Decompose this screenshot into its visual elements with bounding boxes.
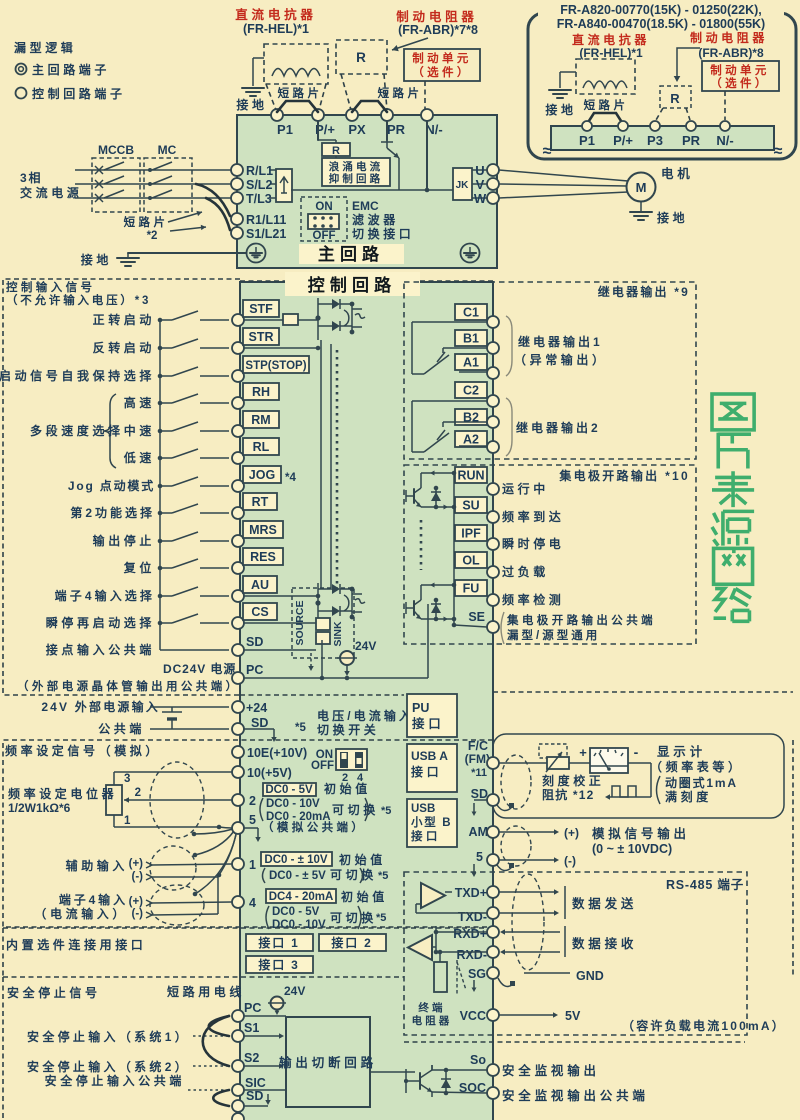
svg-text:接点输入公共端: 接点输入公共端 <box>46 642 155 657</box>
svg-text:可切换: 可切换 <box>330 867 377 882</box>
svg-text:SINK: SINK <box>332 621 344 647</box>
svg-text:数据接收: 数据接收 <box>571 936 637 951</box>
svg-text:RUN: RUN <box>457 469 484 483</box>
svg-text:频率设定信号（模拟）: 频率设定信号（模拟） <box>5 743 161 758</box>
svg-text:GND: GND <box>576 969 604 983</box>
svg-text:（选件）: （选件） <box>412 65 472 79</box>
svg-text:*5: *5 <box>376 912 386 924</box>
svg-text:SIC: SIC <box>245 1076 266 1090</box>
svg-text:RES: RES <box>250 550 276 564</box>
svg-text:切换开关: 切换开关 <box>317 722 379 737</box>
svg-text:继电器输出2: 继电器输出2 <box>516 420 601 435</box>
svg-text:1: 1 <box>124 815 131 827</box>
svg-text:RL: RL <box>253 440 270 454</box>
svg-text:显示计: 显示计 <box>657 744 706 759</box>
svg-text:接地: 接地 <box>545 102 576 117</box>
svg-text:A1: A1 <box>463 356 479 370</box>
svg-text:SG: SG <box>468 967 486 981</box>
svg-text:(+): (+) <box>129 896 144 908</box>
svg-text:漏型逻辑: 漏型逻辑 <box>14 40 76 55</box>
svg-text:制动单元: 制动单元 <box>412 51 472 65</box>
svg-text:STF: STF <box>249 302 273 316</box>
svg-text:低速: 低速 <box>123 450 155 465</box>
svg-text:*4: *4 <box>285 472 296 484</box>
svg-text:短路片: 短路片 <box>378 86 423 100</box>
svg-text:U: U <box>475 163 484 178</box>
svg-text:终端: 终端 <box>418 1001 445 1014</box>
svg-text:SU: SU <box>462 499 479 513</box>
svg-text:DC0 - 5V: DC0 - 5V <box>265 784 313 796</box>
svg-text:输出切断回路: 输出切断回路 <box>279 1055 377 1070</box>
svg-text:接口 1: 接口 1 <box>258 935 299 950</box>
svg-text:5V: 5V <box>565 1009 581 1023</box>
svg-text:（外部电源晶体管输出用公共端）: （外部电源晶体管输出用公共端） <box>17 679 241 693</box>
svg-text:第2功能选择: 第2功能选择 <box>70 505 155 520</box>
svg-text:集电极开路输出 *10: 集电极开路输出 *10 <box>558 468 690 483</box>
svg-text:输出停止: 输出停止 <box>93 533 155 548</box>
svg-text:(FR-HEL)*1: (FR-HEL)*1 <box>579 46 643 60</box>
svg-text:控制回路: 控制回路 <box>308 275 396 295</box>
svg-text:3相: 3相 <box>20 170 42 185</box>
svg-text:(-): (-) <box>564 854 576 868</box>
svg-text:滤波器: 滤波器 <box>352 212 399 227</box>
svg-text:RS-485 端子: RS-485 端子 <box>666 877 744 892</box>
svg-text:*5: *5 <box>295 722 306 734</box>
svg-text:安全监视输出: 安全监视输出 <box>502 1063 600 1078</box>
svg-text:W: W <box>474 191 487 206</box>
svg-text:端子4输入: 端子4输入 <box>59 892 128 907</box>
svg-text:RXD+: RXD+ <box>453 927 487 941</box>
svg-text:控制回路端子: 控制回路端子 <box>32 86 126 101</box>
svg-text:P3: P3 <box>647 133 663 148</box>
svg-text:(FR-HEL)*1: (FR-HEL)*1 <box>243 22 309 36</box>
svg-text:启动信号自我保持选择: 启动信号自我保持选择 <box>0 368 155 383</box>
svg-text:（选件）: （选件） <box>710 76 770 90</box>
svg-text:P1: P1 <box>579 133 595 148</box>
svg-text:SE: SE <box>468 610 485 624</box>
svg-text:OFF: OFF <box>311 760 334 772</box>
svg-text:(FR-ABR)*8: (FR-ABR)*8 <box>698 46 764 60</box>
svg-text:1/2W1kΩ*6: 1/2W1kΩ*6 <box>8 801 71 815</box>
svg-text:PC: PC <box>246 663 263 677</box>
svg-text:4: 4 <box>249 896 256 910</box>
svg-text:ON: ON <box>315 201 332 213</box>
svg-text:MCCB: MCCB <box>98 143 134 157</box>
svg-text:≈: ≈ <box>543 143 552 160</box>
svg-text:直流电抗器: 直流电抗器 <box>235 7 317 22</box>
svg-text:DC24V 电源: DC24V 电源 <box>163 661 236 676</box>
svg-text:P1: P1 <box>277 122 293 137</box>
svg-text:SD: SD <box>246 635 263 649</box>
svg-text:N/-: N/- <box>716 133 733 148</box>
svg-text:TXD+: TXD+ <box>455 886 487 900</box>
svg-text:*11: *11 <box>471 767 487 779</box>
svg-text:24V: 24V <box>355 639 376 653</box>
svg-text:端子4输入选择: 端子4输入选择 <box>55 588 155 603</box>
svg-text:S1: S1 <box>244 1021 259 1035</box>
svg-text:安全监视输出公共端: 安全监视输出公共端 <box>502 1088 649 1103</box>
svg-text:短路用电线: 短路用电线 <box>167 984 245 999</box>
svg-text:安全停止输入（系统1）: 安全停止输入（系统1） <box>27 1029 190 1044</box>
svg-text:继电器输出1: 继电器输出1 <box>518 334 603 349</box>
svg-text:浪涌电流: 浪涌电流 <box>329 160 383 173</box>
svg-text:F/C: F/C <box>468 739 488 753</box>
svg-text:PR: PR <box>387 122 406 137</box>
svg-text:PR: PR <box>682 133 701 148</box>
svg-text:正转启动: 正转启动 <box>93 312 155 327</box>
svg-text:多段速度选择: 多段速度选择 <box>30 423 124 438</box>
svg-text:接口 3: 接口 3 <box>258 957 299 972</box>
svg-text:频率到达: 频率到达 <box>502 509 564 524</box>
svg-text:MC: MC <box>158 143 177 157</box>
svg-text:(FR-ABR)*7*8: (FR-ABR)*7*8 <box>398 23 478 37</box>
svg-text:初始值: 初始值 <box>339 852 386 867</box>
svg-text:电阻器: 电阻器 <box>412 1014 453 1027</box>
svg-text:IPF: IPF <box>461 527 481 541</box>
svg-text:RXD-: RXD- <box>456 948 487 962</box>
svg-text:R/L1: R/L1 <box>246 164 273 178</box>
svg-text:过负载: 过负载 <box>502 564 549 579</box>
svg-text:安全停止输入（系统2）: 安全停止输入（系统2） <box>27 1059 190 1074</box>
svg-text:辅助输入: 辅助输入 <box>66 858 128 873</box>
svg-text:PX: PX <box>348 122 366 137</box>
svg-text:(+): (+) <box>129 858 144 870</box>
svg-text:R: R <box>332 145 340 157</box>
svg-text:R: R <box>356 50 366 65</box>
svg-text:C1: C1 <box>463 306 479 320</box>
svg-text:公共端: 公共端 <box>98 721 145 736</box>
svg-text:C2: C2 <box>463 384 479 398</box>
svg-text:USB A: USB A <box>411 749 448 763</box>
svg-text:接口: 接口 <box>412 716 445 731</box>
svg-text:SD: SD <box>471 787 488 801</box>
svg-text:（频率表等）: （频率表等） <box>650 759 744 774</box>
svg-text:Jog 点动模式: Jog 点动模式 <box>68 478 155 493</box>
svg-text:EMC: EMC <box>352 199 379 213</box>
svg-text:电机: 电机 <box>661 166 694 181</box>
svg-text:接口 2: 接口 2 <box>331 935 372 950</box>
svg-text:（容许负载电流100mA）: （容许负载电流100mA） <box>622 1018 786 1033</box>
svg-text:直流电抗器: 直流电抗器 <box>572 32 650 47</box>
svg-text:FU: FU <box>463 582 480 596</box>
svg-text:模拟信号输出: 模拟信号输出 <box>592 826 690 841</box>
svg-text:接口: 接口 <box>411 829 441 843</box>
svg-text:接地: 接地 <box>657 210 688 225</box>
svg-text:RH: RH <box>252 385 270 399</box>
svg-text:*5: *5 <box>381 805 391 817</box>
svg-text:STP(STOP): STP(STOP) <box>245 360 306 372</box>
svg-text:USB: USB <box>411 803 435 815</box>
svg-text:S1/L21: S1/L21 <box>246 227 286 241</box>
svg-text:M: M <box>636 180 647 195</box>
svg-text:DC0 - 20mA: DC0 - 20mA <box>266 811 331 823</box>
svg-text:短路片: 短路片 <box>124 215 169 229</box>
svg-text:B1: B1 <box>463 332 479 346</box>
svg-text:5: 5 <box>476 850 483 864</box>
svg-text:AM: AM <box>469 825 488 839</box>
svg-text:小型 B: 小型 B <box>410 815 452 829</box>
svg-text:SD: SD <box>246 1089 263 1103</box>
svg-text:24V: 24V <box>284 984 305 998</box>
svg-text:PU: PU <box>412 701 429 715</box>
svg-text:1: 1 <box>249 858 256 872</box>
svg-text:交流电源: 交流电源 <box>20 185 82 200</box>
svg-text:JOG: JOG <box>249 468 275 482</box>
svg-text:瞬时停电: 瞬时停电 <box>502 536 564 551</box>
svg-text:接口: 接口 <box>411 764 442 779</box>
svg-text:So: So <box>470 1053 486 1067</box>
svg-text:继电器输出 *9: 继电器输出 *9 <box>598 284 690 299</box>
svg-text:DC4 - 20mA: DC4 - 20mA <box>269 891 334 903</box>
svg-text:阻抗 *12: 阻抗 *12 <box>542 787 595 802</box>
svg-text:频率检测: 频率检测 <box>502 592 564 607</box>
svg-text:FR-A820-00770(15K) - 01250(22K: FR-A820-00770(15K) - 01250(22K), <box>560 3 761 17</box>
svg-text:切换接口: 切换接口 <box>352 226 414 241</box>
svg-text:DC0 - 5V: DC0 - 5V <box>272 906 320 918</box>
svg-text:反转启动: 反转启动 <box>93 340 155 355</box>
svg-text:(0 ~ ± 10VDC): (0 ~ ± 10VDC) <box>592 842 672 856</box>
svg-text:-: - <box>634 744 639 760</box>
svg-text:DC0 - ± 5V: DC0 - ± 5V <box>269 870 326 882</box>
svg-text:5: 5 <box>249 813 256 827</box>
svg-text:2: 2 <box>249 794 256 808</box>
svg-text:*2: *2 <box>147 230 158 242</box>
svg-text:SOURCE: SOURCE <box>294 601 306 646</box>
svg-text:R1/L11: R1/L11 <box>246 213 286 227</box>
svg-text:FR-A840-00470(18.5K) - 01800(5: FR-A840-00470(18.5K) - 01800(55K) <box>557 17 765 31</box>
svg-text:A2: A2 <box>463 433 479 447</box>
svg-text:满刻度: 满刻度 <box>665 789 712 804</box>
svg-text:3: 3 <box>124 773 130 785</box>
svg-text:复位: 复位 <box>123 560 155 575</box>
svg-text:可切换: 可切换 <box>332 802 379 817</box>
svg-text:初始值: 初始值 <box>324 781 371 796</box>
svg-text:主回路端子: 主回路端子 <box>32 62 110 77</box>
svg-text:瞬停再启动选择: 瞬停再启动选择 <box>46 615 155 630</box>
svg-text:VCC: VCC <box>460 1009 486 1023</box>
svg-text:+24: +24 <box>246 701 267 715</box>
svg-text:JK: JK <box>456 180 470 191</box>
svg-text:运行中: 运行中 <box>502 481 549 496</box>
svg-text:数据发送: 数据发送 <box>571 896 637 911</box>
svg-text:PC: PC <box>244 1001 261 1015</box>
svg-text:初始值: 初始值 <box>341 889 388 904</box>
svg-text:2: 2 <box>135 787 141 799</box>
svg-text:OFF: OFF <box>313 230 336 242</box>
svg-text:可切换: 可切换 <box>330 910 377 925</box>
svg-text:R: R <box>670 91 680 106</box>
svg-text:安全停止输入公共端: 安全停止输入公共端 <box>45 1073 185 1088</box>
svg-text:接地: 接地 <box>81 252 112 267</box>
svg-text:RT: RT <box>252 495 269 509</box>
svg-text:制动电阻器: 制动电阻器 <box>396 9 478 24</box>
svg-text:TXD-: TXD- <box>458 910 487 924</box>
svg-text:动圈式1mA: 动圈式1mA <box>665 775 738 790</box>
svg-text:安全停止信号: 安全停止信号 <box>7 985 101 1000</box>
svg-text:CS: CS <box>251 605 268 619</box>
svg-text:S/L2: S/L2 <box>246 178 272 192</box>
svg-text:RM: RM <box>251 413 270 427</box>
svg-text:*5: *5 <box>378 870 388 882</box>
svg-text:10(+5V): 10(+5V) <box>247 766 292 780</box>
svg-text:短路片: 短路片 <box>278 86 323 100</box>
svg-text:OL: OL <box>462 554 480 568</box>
svg-text:控制输入信号: 控制输入信号 <box>6 280 95 294</box>
svg-text:(+): (+) <box>564 826 579 840</box>
svg-text:制动电阻器: 制动电阻器 <box>690 30 768 45</box>
svg-text:电压/电流输入: 电压/电流输入 <box>317 708 414 723</box>
svg-text:中速: 中速 <box>124 423 155 438</box>
svg-text:SD: SD <box>251 716 268 730</box>
svg-text:10E(+10V): 10E(+10V) <box>247 746 307 760</box>
svg-text:S2: S2 <box>244 1051 259 1065</box>
svg-text:抑制回路: 抑制回路 <box>329 172 383 185</box>
svg-text:V: V <box>476 177 485 192</box>
svg-text:（电流输入）: （电流输入） <box>34 906 128 921</box>
svg-text:主回路: 主回路 <box>318 244 384 264</box>
svg-text:频率设定电位器: 频率设定电位器 <box>8 786 117 801</box>
svg-text:(-): (-) <box>132 871 144 883</box>
svg-text:STR: STR <box>249 330 274 344</box>
svg-text:SOC: SOC <box>459 1081 486 1095</box>
svg-text:MRS: MRS <box>249 523 277 537</box>
svg-text:T/L3: T/L3 <box>246 192 272 206</box>
svg-text:24V 外部电源输入: 24V 外部电源输入 <box>41 699 160 714</box>
svg-text:制动单元: 制动单元 <box>710 63 770 77</box>
svg-text:接地: 接地 <box>236 97 267 112</box>
svg-text:内置选件连接用接口: 内置选件连接用接口 <box>6 937 146 952</box>
svg-text:AU: AU <box>251 578 269 592</box>
svg-text:刻度校正: 刻度校正 <box>542 773 604 788</box>
svg-text:（异常输出）: （异常输出） <box>514 352 608 367</box>
svg-text:P/+: P/+ <box>613 133 633 148</box>
svg-text:≈: ≈ <box>774 143 783 160</box>
svg-text:DC0 - 10V: DC0 - 10V <box>266 798 320 810</box>
svg-text:高速: 高速 <box>124 395 155 410</box>
svg-text:漏型/源型通用: 漏型/源型通用 <box>507 628 600 642</box>
svg-text:集电极开路输出公共端: 集电极开路输出公共端 <box>506 613 656 627</box>
svg-text:DC0 - 10V: DC0 - 10V <box>272 919 326 931</box>
svg-text:+: + <box>579 745 587 760</box>
svg-text:DC0 - ± 10V: DC0 - ± 10V <box>264 854 328 866</box>
svg-text:(-): (-) <box>132 908 144 920</box>
svg-text:短路片: 短路片 <box>584 98 629 112</box>
svg-text:（不允许输入电压）*3: （不允许输入电压）*3 <box>6 293 151 307</box>
